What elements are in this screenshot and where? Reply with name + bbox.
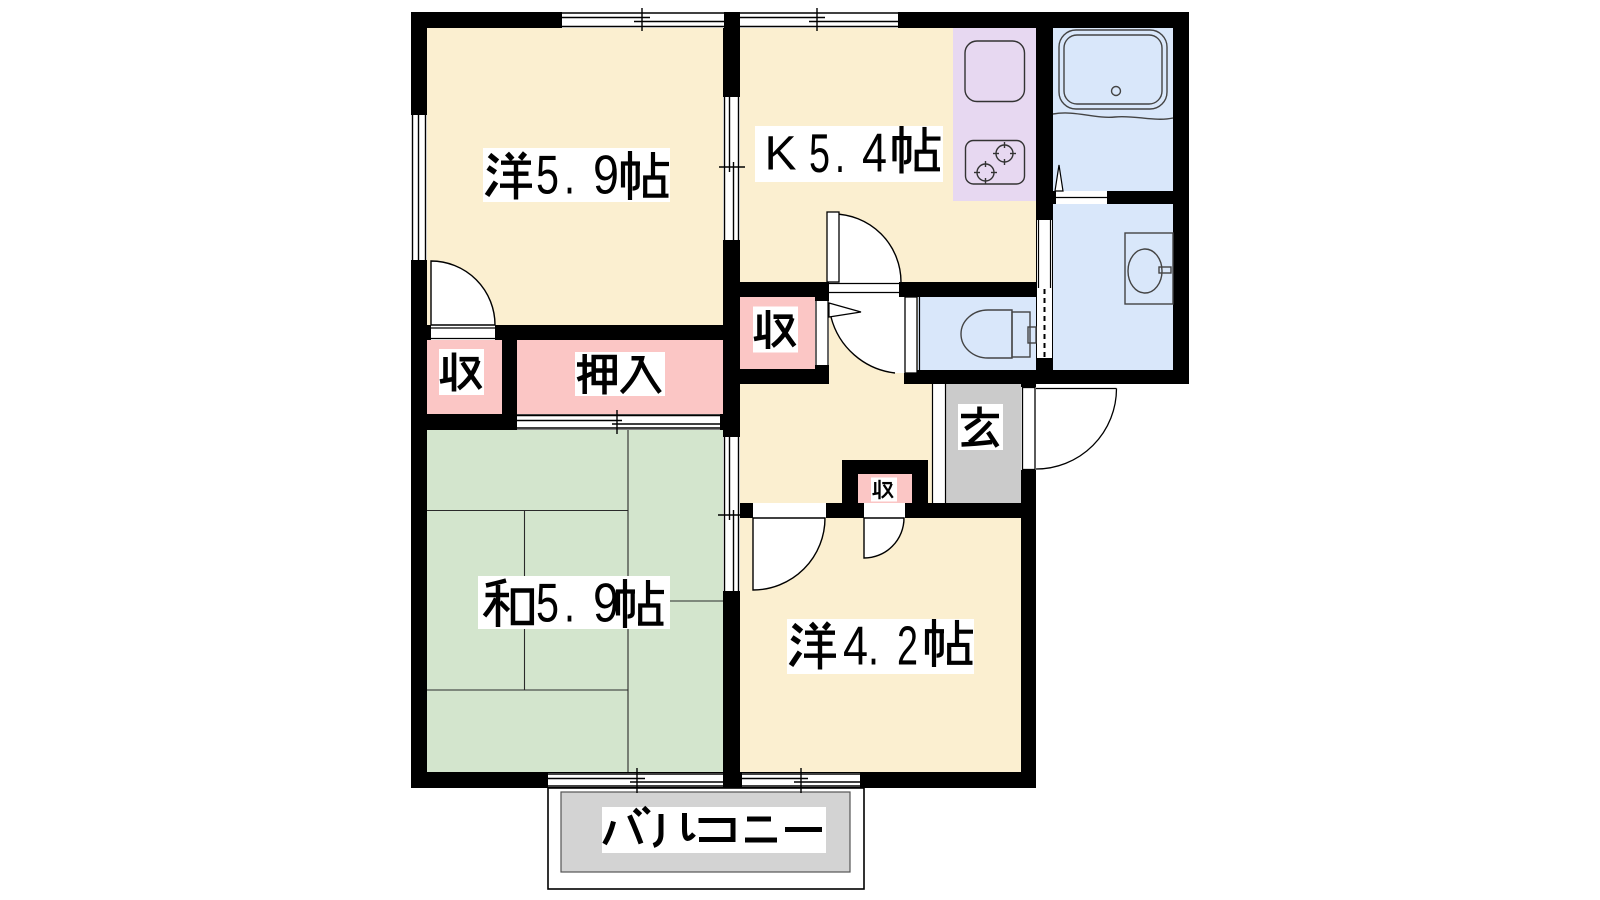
svg-text:4: 4: [843, 615, 868, 677]
svg-text:.: .: [564, 144, 575, 206]
svg-text:4: 4: [862, 122, 887, 184]
svg-text:.: .: [835, 122, 845, 184]
svg-text:5: 5: [536, 144, 559, 206]
svg-text:.: .: [868, 615, 879, 677]
svg-text:K: K: [765, 128, 797, 181]
svg-text:.: .: [564, 572, 575, 634]
svg-text:2: 2: [897, 615, 918, 677]
svg-text:5: 5: [536, 572, 559, 634]
svg-text:5: 5: [809, 122, 830, 184]
svg-text:9: 9: [593, 572, 619, 634]
svg-text:9: 9: [593, 144, 619, 206]
